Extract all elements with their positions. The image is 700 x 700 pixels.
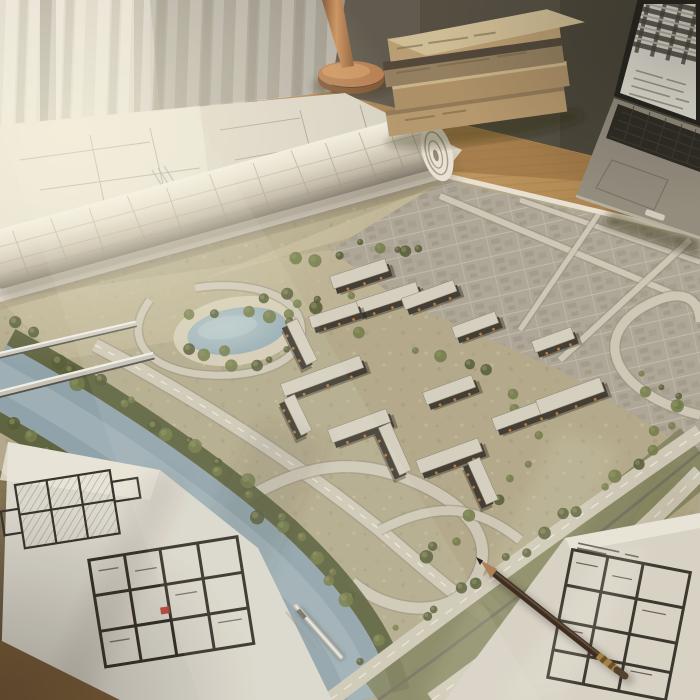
scene-canvas (0, 0, 700, 700)
pencil-end-cap (617, 670, 625, 676)
desk-scene-photo (0, 0, 700, 700)
red-revision-mark (160, 606, 170, 614)
